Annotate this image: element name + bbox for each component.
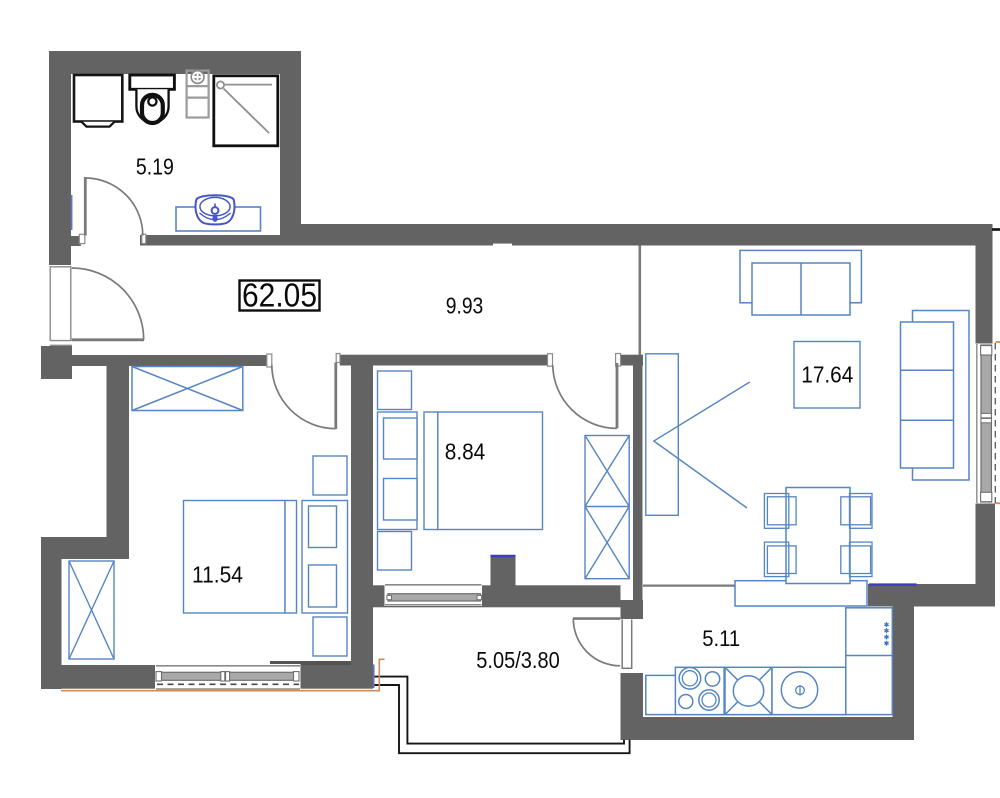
svg-text:5.19: 5.19 — [136, 154, 174, 180]
svg-text:5.11: 5.11 — [702, 626, 740, 651]
svg-text:8.84: 8.84 — [445, 439, 486, 465]
svg-text:62.05: 62.05 — [242, 278, 317, 315]
svg-text:11.54: 11.54 — [192, 562, 243, 588]
svg-text:5.05/3.80: 5.05/3.80 — [476, 647, 560, 673]
svg-text:9.93: 9.93 — [446, 292, 484, 318]
svg-text:17.64: 17.64 — [801, 362, 853, 388]
